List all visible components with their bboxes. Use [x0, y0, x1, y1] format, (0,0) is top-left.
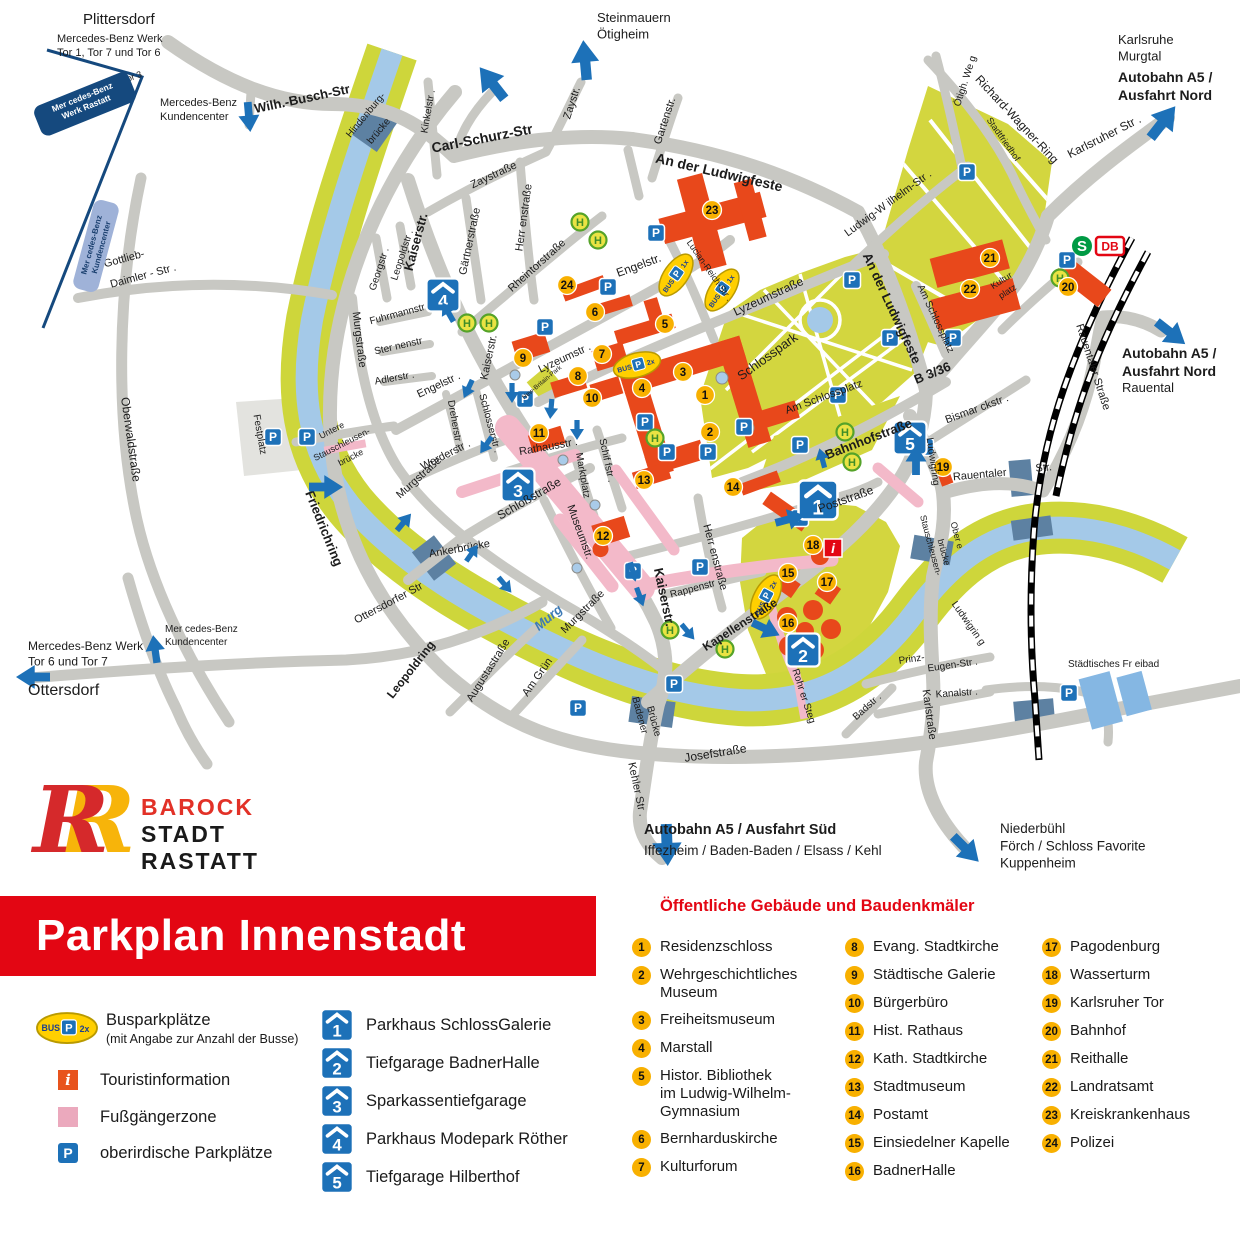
svg-text:P: P	[963, 165, 971, 179]
street-label: Ster nenstr	[373, 336, 424, 358]
bus-stop-icon: H	[481, 315, 498, 332]
building-name: Kreiskrankenhaus	[1070, 1106, 1190, 1124]
destination-label: KarlsruheMurgtal	[1118, 32, 1174, 64]
poi-badge: 17	[818, 573, 837, 592]
parking-icon: P	[666, 676, 683, 693]
buildings-column-1: 1Residenzschloss2Wehrgeschichtliches Mus…	[632, 938, 844, 1186]
svg-text:17: 17	[821, 577, 834, 589]
buildings-legend-title: Öffentliche Gebäude und Baudenkmäler	[660, 897, 974, 916]
svg-text:6: 6	[592, 307, 598, 319]
poi-badge: 4	[633, 379, 652, 398]
city-logo: R R BAROCK STADT RASTATT	[33, 780, 259, 875]
building-name: Stadtmuseum	[873, 1078, 966, 1096]
svg-text:H: H	[576, 217, 584, 229]
parking-icon: P	[570, 700, 587, 717]
svg-text:9: 9	[520, 353, 526, 365]
poi-badge: 23	[703, 201, 722, 220]
building-number-badge: 13	[845, 1078, 864, 1097]
poi-badge: 9	[514, 349, 533, 368]
poi-badge: 5	[656, 315, 675, 334]
svg-text:S: S	[1077, 238, 1087, 255]
parking-icon: P	[648, 225, 665, 242]
garage-icon: 4	[321, 1123, 353, 1155]
svg-text:H: H	[651, 433, 659, 445]
building-entry-2: 2Wehrgeschichtliches Museum	[632, 966, 844, 1002]
parking-icon: P	[659, 444, 676, 461]
bus-stop-icon: H	[572, 214, 589, 231]
destination-label: Iffezheim / Baden-Baden / Elsass / Kehl	[644, 843, 882, 858]
svg-text:18: 18	[807, 540, 820, 552]
destination-label: Mer cedes-BenzKundencenter	[165, 624, 238, 648]
building-number-badge: 7	[632, 1158, 651, 1177]
destination-label: Autobahn A5 / Ausfahrt Süd	[644, 822, 836, 838]
building-entry-16: 16BadnerHalle	[845, 1162, 1045, 1181]
svg-text:H: H	[848, 457, 856, 469]
parking-icon: P	[637, 414, 654, 431]
building-name: Kulturforum	[660, 1158, 738, 1176]
building-name: Wehrgeschichtliches Museum	[660, 966, 797, 1002]
poi-badge: 20	[1059, 278, 1078, 297]
building-number-badge: 20	[1042, 1022, 1061, 1041]
svg-text:14: 14	[727, 482, 740, 494]
street-label: Augustastraße	[464, 637, 512, 704]
building-entry-20: 20Bahnhof	[1042, 1022, 1238, 1041]
svg-text:16: 16	[782, 618, 795, 630]
destination-label: Mercedes-Benz WerkTor 1, Tor 7 und Tor 6	[57, 33, 163, 59]
building-entry-5: 5Histor. Bibliothek im Ludwig-Wilhelm- G…	[632, 1067, 844, 1121]
parking-icon: P	[692, 559, 709, 576]
building-entry-23: 23Kreiskrankenhaus	[1042, 1106, 1238, 1125]
surface-parking-icon: P	[58, 1143, 78, 1163]
building-entry-13: 13Stadtmuseum	[845, 1078, 1045, 1097]
building-name: Karlsruher Tor	[1070, 994, 1164, 1012]
building-name: Histor. Bibliothek im Ludwig-Wilhelm- Gy…	[660, 1067, 791, 1121]
destination-label: Mercedes-BenzKundencenter	[160, 97, 237, 123]
svg-text:5: 5	[332, 1174, 341, 1193]
svg-text:2: 2	[798, 646, 808, 666]
poi-badge: 3	[674, 363, 693, 382]
building-name: Kath. Stadtkirche	[873, 1050, 987, 1068]
garage-icon: 5	[320, 1160, 354, 1194]
legend-garage-label: Parkhaus SchlossGalerie	[366, 1016, 551, 1035]
svg-text:3: 3	[680, 367, 686, 379]
building-number-badge: 6	[632, 1130, 651, 1149]
garage-icon: 2	[321, 1047, 353, 1079]
svg-text:10: 10	[586, 393, 599, 405]
building-number-badge: 12	[845, 1050, 864, 1069]
buildings-column-3: 17Pagodenburg18Wasserturm19Karlsruher To…	[1042, 938, 1238, 1162]
svg-text:22: 22	[964, 284, 977, 296]
svg-text:P: P	[663, 445, 671, 459]
street-label: Ludwigrin g	[949, 599, 987, 647]
svg-text:13: 13	[638, 475, 651, 487]
svg-text:4: 4	[639, 383, 646, 395]
legend-bus-sub: (mit Angabe zur Anzahl der Busse)	[106, 1032, 298, 1046]
building-number-badge: 1	[632, 938, 651, 957]
bus-parking-icon: BUSP2x	[36, 1010, 98, 1046]
building-number-badge: 2	[632, 966, 651, 985]
svg-text:4: 4	[332, 1136, 342, 1155]
street-label: Zaystraße	[469, 159, 519, 191]
legend-garage-label: Parkhaus Modepark Röther	[366, 1130, 568, 1149]
legend-garage-4: 4Parkhaus Modepark Röther	[320, 1122, 568, 1156]
building-number-badge: 4	[632, 1039, 651, 1058]
building-name: Pagodenburg	[1070, 938, 1160, 956]
title-banner: Parkplan Innenstadt	[0, 896, 596, 976]
park-pond	[807, 307, 833, 333]
legend-garage-label: Tiefgarage BadnerHalle	[366, 1054, 540, 1073]
svg-text:P: P	[1065, 686, 1073, 700]
building-name: Polizei	[1070, 1134, 1114, 1152]
parkplan-poster: PPPPPPPPPPPPPPPPPPPPPPPPHHHHHHHHHHBUSP1x…	[0, 0, 1240, 1240]
svg-text:3: 3	[332, 1098, 341, 1117]
parking-icon: P	[959, 164, 976, 181]
building-number-badge: 22	[1042, 1078, 1061, 1097]
pedestrian-zone-swatch	[58, 1107, 78, 1127]
garage-icon: 2	[320, 1046, 354, 1080]
building-number-badge: 21	[1042, 1050, 1061, 1069]
svg-text:1: 1	[702, 390, 709, 402]
building-number-badge: 5	[632, 1067, 651, 1086]
poi-badge: 16	[779, 614, 798, 633]
building-name: Städtische Galerie	[873, 966, 996, 984]
building-entry-24: 24Polizei	[1042, 1134, 1238, 1153]
legend-garage-5: 5Tiefgarage Hilberthof	[320, 1160, 519, 1194]
street-label: Zaystr.	[561, 86, 583, 121]
svg-text:H: H	[485, 318, 493, 330]
destination-label: Autobahn A5 /Ausfahrt Nord	[1122, 345, 1216, 379]
direction-arrow	[469, 59, 516, 108]
legend-pedestrian: Fußgängerzone	[58, 1107, 217, 1127]
parking-icon: P	[600, 279, 617, 296]
poi-badge: 14	[724, 478, 743, 497]
street-label: Engelstr.	[614, 251, 663, 280]
garage-icon: 3	[321, 1085, 353, 1117]
svg-text:P: P	[574, 701, 582, 715]
building-name: Bernharduskirche	[660, 1130, 778, 1148]
legend-touristinfo: i Touristinformation	[58, 1070, 230, 1090]
parking-icon: P	[299, 429, 316, 446]
building-number-badge: 10	[845, 994, 864, 1013]
poi-badge: 22	[961, 280, 980, 299]
poi-badge: 8	[569, 367, 588, 386]
street-label: Adlerstr .	[374, 370, 415, 388]
logo-text: BAROCK STADT RASTATT	[141, 794, 259, 875]
parking-icon: P	[792, 437, 809, 454]
parking-icon: P	[1061, 685, 1078, 702]
freibad-buildings	[1079, 663, 1153, 730]
bus-stop-icon: H	[459, 315, 476, 332]
legend-garage-2: 2Tiefgarage BadnerHalle	[320, 1046, 540, 1080]
building-number-badge: 24	[1042, 1134, 1061, 1153]
bus-stop-icon: H	[647, 430, 664, 447]
svg-text:8: 8	[575, 371, 582, 383]
building-name: BadnerHalle	[873, 1162, 956, 1180]
building-entry-7: 7Kulturforum	[632, 1158, 844, 1177]
building-number-badge: 14	[845, 1106, 864, 1125]
street-label: Fuhrmannstr	[369, 302, 427, 327]
building-entry-15: 15Einsiedelner Kapelle	[845, 1134, 1045, 1153]
road-network	[30, 42, 1240, 858]
building-name: Landratsamt	[1070, 1078, 1153, 1096]
svg-text:1: 1	[332, 1022, 341, 1041]
building-entry-6: 6Bernharduskirche	[632, 1130, 844, 1149]
building-number-badge: 15	[845, 1134, 864, 1153]
building-name: Bahnhof	[1070, 1022, 1126, 1040]
svg-text:H: H	[721, 644, 729, 656]
building-name: Einsiedelner Kapelle	[873, 1134, 1010, 1152]
logo-r-glyph: R R	[33, 780, 129, 872]
logo-r-red: R	[33, 766, 109, 874]
bus-parking-icon: BUSP2x	[37, 1013, 97, 1043]
poi-badge: 12	[594, 527, 613, 546]
building-number-badge: 3	[632, 1011, 651, 1030]
legend-bus-label: Busparkplätze	[106, 1011, 298, 1030]
legend-garage-3: 3Sparkassentiefgarage	[320, 1084, 527, 1118]
building-name: Evang. Stadtkirche	[873, 938, 999, 956]
destination-label: Plittersdorf	[83, 11, 156, 28]
destination-label: Mercedes-Benz WerkTor 6 und Tor 7	[28, 639, 144, 668]
legend-bus: BUSP2x Busparkplätze (mit Angabe zur Anz…	[36, 1010, 298, 1046]
svg-text:P: P	[670, 677, 678, 691]
svg-text:P: P	[796, 438, 804, 452]
tourist-info-icon: i	[824, 539, 842, 557]
svg-text:11: 11	[533, 428, 546, 440]
svg-text:P: P	[641, 415, 649, 429]
building-entry-3: 3Freiheitsmuseum	[632, 1011, 844, 1030]
building-number-badge: 16	[845, 1162, 864, 1181]
destination-label: NiederbühlFörch / Schloss FavoriteKuppen…	[1000, 821, 1146, 871]
building-entry-10: 10Bürgerbüro	[845, 994, 1045, 1013]
building-name: Freiheitsmuseum	[660, 1011, 775, 1029]
svg-text:5: 5	[662, 319, 669, 331]
poi-badge: 11	[530, 424, 549, 443]
svg-text:BUS: BUS	[42, 1023, 61, 1033]
svg-text:P: P	[696, 560, 704, 574]
svg-text:P: P	[704, 445, 712, 459]
svg-text:P: P	[541, 320, 549, 334]
building-name: Residenzschloss	[660, 938, 773, 956]
building-entry-4: 4Marstall	[632, 1039, 844, 1058]
svg-text:24: 24	[561, 280, 574, 292]
building-number-badge: 11	[845, 1022, 864, 1041]
buildings-column-2: 8Evang. Stadtkirche9Städtische Galerie10…	[845, 938, 1045, 1190]
building-entry-14: 14Postamt	[845, 1106, 1045, 1125]
svg-text:7: 7	[599, 349, 605, 361]
svg-text:H: H	[841, 427, 849, 439]
destination-label: Rauental	[1122, 380, 1174, 395]
building-name: Marstall	[660, 1039, 713, 1057]
building-number-badge: 23	[1042, 1106, 1061, 1125]
building-number-badge: 17	[1042, 938, 1061, 957]
poi-badge: 15	[779, 564, 798, 583]
destination-label: Autobahn A5 /Ausfahrt Nord	[1118, 69, 1212, 103]
svg-text:2: 2	[332, 1060, 341, 1079]
direction-arrow	[676, 620, 700, 644]
building-name: Reithalle	[1070, 1050, 1128, 1068]
building-entry-1: 1Residenzschloss	[632, 938, 844, 957]
street-label: Str.	[1035, 461, 1052, 474]
svg-text:23: 23	[706, 205, 719, 217]
building-name: Postamt	[873, 1106, 928, 1124]
garage-icon: 1	[320, 1008, 354, 1042]
svg-text:P: P	[652, 226, 660, 240]
garage-icon: 4	[320, 1122, 354, 1156]
svg-text:20: 20	[1062, 282, 1075, 294]
poi-badge: 24	[558, 276, 577, 295]
building-entry-19: 19Karlsruher Tor	[1042, 994, 1238, 1013]
svg-text:15: 15	[782, 568, 795, 580]
parking-icon: P	[844, 272, 861, 289]
building-entry-18: 18Wasserturm	[1042, 966, 1238, 985]
poi-badge: 1	[696, 386, 715, 405]
building-name: Bürgerbüro	[873, 994, 948, 1012]
bus-stop-icon: H	[590, 232, 607, 249]
building-entry-8: 8Evang. Stadtkirche	[845, 938, 1045, 957]
building-number-badge: 19	[1042, 994, 1061, 1013]
garage-icon: 2	[787, 634, 820, 667]
svg-text:2: 2	[707, 427, 713, 439]
legend-garage-1: 1Parkhaus SchlossGalerie	[320, 1008, 551, 1042]
poi-badge: 18	[804, 536, 823, 555]
destination-label: Ottersdorf	[28, 682, 100, 699]
garage-icon: 3	[320, 1084, 354, 1118]
svg-text:P: P	[65, 1023, 73, 1035]
poi-badge: 2	[701, 423, 720, 442]
svg-text:P: P	[886, 331, 894, 345]
street-label: Prinz-	[898, 652, 925, 667]
parking-icon: P	[700, 444, 717, 461]
svg-text:12: 12	[597, 531, 610, 543]
svg-text:P: P	[848, 273, 856, 287]
poi-badge: 7	[593, 345, 612, 364]
parking-icon: P	[736, 419, 753, 436]
tourist-info-icon: i	[58, 1070, 78, 1090]
svg-text:P: P	[1063, 253, 1071, 267]
svg-text:P: P	[740, 420, 748, 434]
garage-icon: 5	[321, 1161, 353, 1193]
poi-badge: 13	[635, 471, 654, 490]
destination-label: Städtisches Fr eibad	[1068, 659, 1159, 670]
street-label: Ottersdorfer Str	[352, 580, 425, 626]
page-title: Parkplan Innenstadt	[0, 911, 466, 961]
building-entry-9: 9Städtische Galerie	[845, 966, 1045, 985]
parking-icon: P	[1059, 252, 1076, 269]
building-entry-21: 21Reithalle	[1042, 1050, 1238, 1069]
building-name: Hist. Rathaus	[873, 1022, 963, 1040]
legend-parking: P oberirdische Parkplätze	[58, 1143, 272, 1163]
svg-text:P: P	[604, 280, 612, 294]
svg-text:P: P	[303, 430, 311, 444]
poi-badge: 21	[981, 249, 1000, 268]
svg-text:2x: 2x	[80, 1024, 90, 1034]
building-number-badge: 18	[1042, 966, 1061, 985]
garage-icon: 1	[321, 1009, 353, 1041]
svg-text:21: 21	[984, 253, 997, 265]
legend-garage-label: Tiefgarage Hilberthof	[366, 1168, 519, 1187]
building-entry-17: 17Pagodenburg	[1042, 938, 1238, 957]
sbahn-db-logo: SDB	[1072, 236, 1124, 256]
destination-label: SteinmauernÖtigheim	[597, 10, 671, 42]
building-number-badge: 8	[845, 938, 864, 957]
building-entry-22: 22Landratsamt	[1042, 1078, 1238, 1097]
svg-text:H: H	[463, 318, 471, 330]
svg-text:P: P	[269, 430, 277, 444]
building-entry-12: 12Kath. Stadtkirche	[845, 1050, 1045, 1069]
street-label: Bismar ckstr .	[944, 392, 1011, 426]
building-number-badge: 9	[845, 966, 864, 985]
building-entry-11: 11Hist. Rathaus	[845, 1022, 1045, 1041]
svg-text:H: H	[594, 235, 602, 247]
svg-text:DB: DB	[1101, 240, 1119, 254]
parking-icon: P	[537, 319, 554, 336]
poi-badge: 10	[583, 389, 602, 408]
building-name: Wasserturm	[1070, 966, 1150, 984]
legend-garage-label: Sparkassentiefgarage	[366, 1092, 527, 1111]
bus-stop-icon: H	[844, 454, 861, 471]
direction-arrow	[569, 39, 600, 81]
poi-badge: 6	[586, 303, 605, 322]
